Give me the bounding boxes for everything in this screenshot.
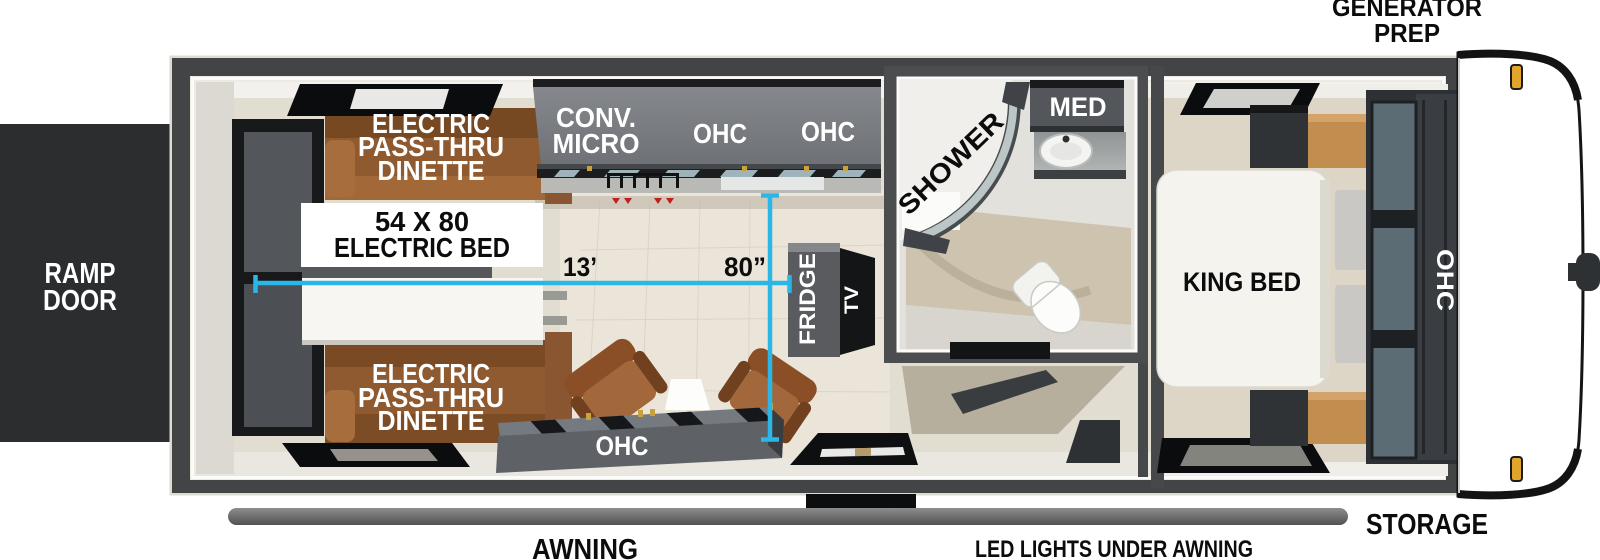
svg-text:DOOR: DOOR	[43, 285, 117, 317]
svg-text:STORAGE: STORAGE	[1366, 509, 1488, 541]
svg-text:AWNING: AWNING	[532, 534, 638, 560]
svg-text:80”: 80”	[724, 252, 766, 282]
svg-text:LED LIGHTS UNDER AWNING: LED LIGHTS UNDER AWNING	[975, 536, 1253, 560]
svg-text:TV: TV	[842, 286, 863, 314]
svg-text:OHC: OHC	[693, 118, 747, 149]
svg-text:OHC: OHC	[801, 116, 855, 147]
svg-text:OHC: OHC	[596, 431, 649, 461]
svg-text:MED: MED	[1050, 92, 1107, 122]
svg-text:MICRO: MICRO	[553, 128, 640, 159]
svg-text:DINETTE: DINETTE	[378, 405, 485, 436]
svg-text:KING BED: KING BED	[1183, 267, 1301, 297]
svg-text:PREP: PREP	[1374, 18, 1440, 48]
svg-text:ELECTRIC BED: ELECTRIC BED	[334, 232, 510, 263]
svg-text:FRIDGE: FRIDGE	[795, 253, 820, 345]
svg-text:13’: 13’	[563, 252, 597, 282]
svg-text:DINETTE: DINETTE	[378, 155, 485, 186]
svg-text:OHC: OHC	[1431, 249, 1458, 311]
